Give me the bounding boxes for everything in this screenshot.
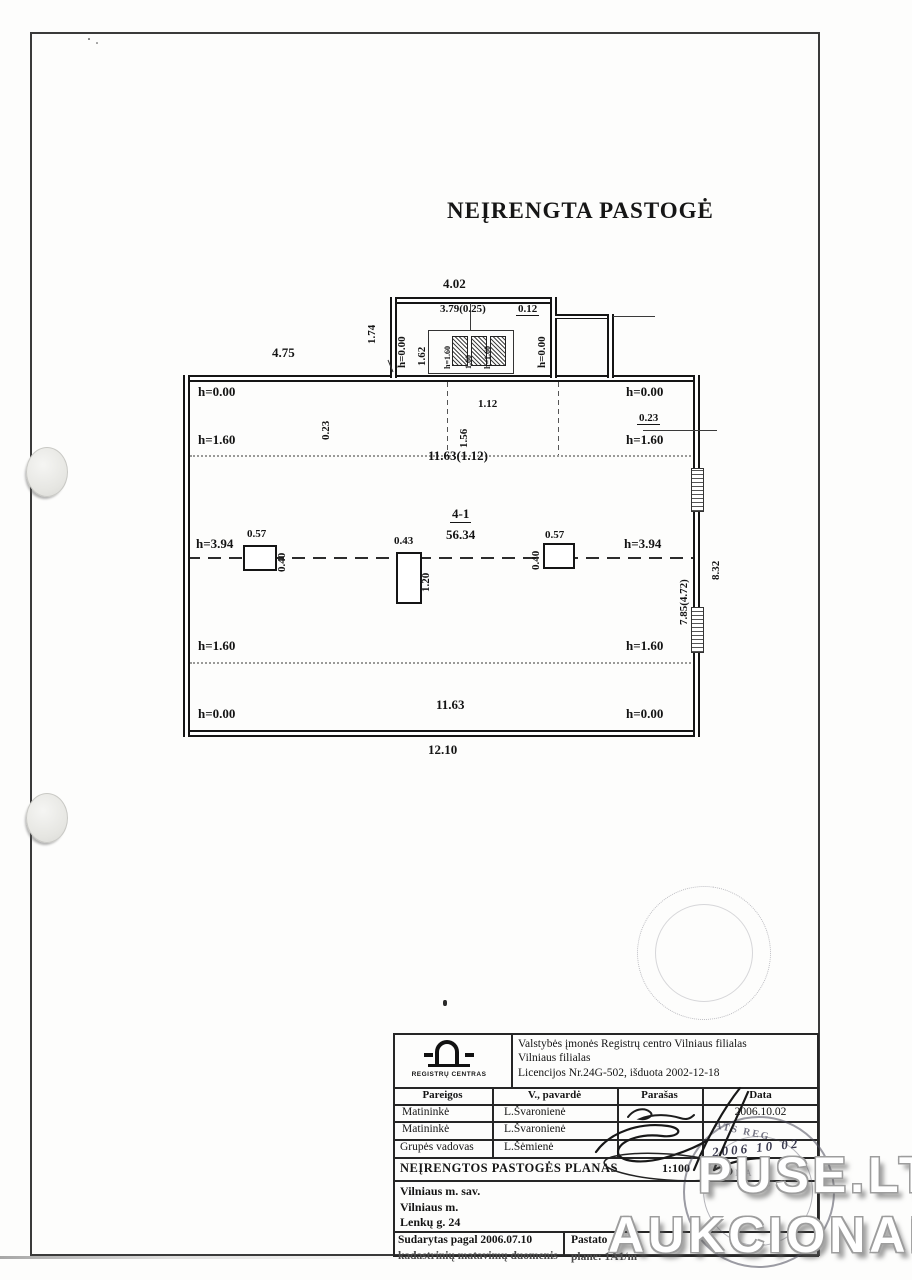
dormer-wall-right	[550, 297, 557, 378]
logo-base	[428, 1064, 470, 1067]
dashed-guide-left	[447, 382, 448, 456]
height-mid-left: h=1.60	[198, 432, 235, 448]
faint-round-stamp-inner	[655, 904, 753, 1002]
logo-bar-left	[424, 1053, 433, 1057]
tick-line-023	[643, 430, 717, 431]
height-dormer-right: h=0.00	[536, 336, 548, 368]
chimney-middle	[396, 552, 422, 604]
logo-caption: REGISTRŲ CENTRAS	[399, 1071, 499, 1078]
row1-pavarde: L.Švaronienė	[504, 1106, 566, 1118]
tblock-divider-footer	[563, 1231, 565, 1255]
row3-pareigos: Grupės vadovas	[400, 1141, 474, 1153]
roof-window-lower	[691, 607, 704, 653]
logo-arch-icon	[435, 1040, 459, 1064]
wall-left	[183, 375, 190, 737]
org-line-1: Valstybės įmonės Registrų centro Vilniau…	[518, 1038, 747, 1050]
dim-1-74: 1.74	[366, 325, 378, 344]
height-mid-right: h=1.60	[626, 432, 663, 448]
dim-1-12: 1.12	[478, 398, 497, 410]
roof-window-upper	[691, 468, 704, 512]
dim-1-62: 1.62	[416, 347, 428, 366]
watermark-line-1: PUSE.LT	[698, 1146, 912, 1204]
dim-0-23-vertical: 0.23	[320, 421, 332, 440]
dim-7-85: 7.85(4.72)	[678, 579, 690, 625]
chimney-right-width: 0.57	[545, 529, 564, 541]
row3-pavarde: L.Šėmienė	[504, 1141, 554, 1153]
height-bottom-left: h=0.00	[198, 706, 235, 722]
height-ridge-left: h=3.94	[196, 536, 233, 552]
height-ridge-right: h=3.94	[624, 536, 661, 552]
dim-12-10: 12.10	[428, 742, 457, 758]
scanned-document-page: NEĮRENGTA PASTOGĖ 4.02	[0, 0, 912, 1280]
col-header-pareigos: Pareigos	[393, 1089, 492, 1101]
tblock-divider-logo	[511, 1033, 513, 1087]
scan-smudge	[0, 1256, 420, 1259]
dim-4-02: 4.02	[443, 276, 466, 292]
hole-punch-top	[26, 447, 68, 497]
scan-speck	[96, 42, 98, 44]
height-bottom-right: h=0.00	[626, 706, 663, 722]
address-line-3: Lenkų g. 24	[400, 1215, 460, 1230]
height-dormer-left: h=0.00	[396, 336, 408, 368]
dormer-step-wall-h	[555, 314, 613, 319]
dim-8-32: 8.32	[710, 561, 722, 580]
footer-left-line-1: Sudarytas pagal 2006.07.10	[398, 1234, 532, 1246]
height-top-right: h=0.00	[626, 384, 663, 400]
row1-pareigos: Matininkė	[402, 1106, 449, 1118]
dormer-step-wall-v	[607, 314, 614, 378]
logo-bar-right	[465, 1053, 474, 1057]
height-top-left: h=0.00	[198, 384, 235, 400]
room-area: 56.34	[446, 527, 475, 543]
height-contour-160-lower	[190, 662, 695, 664]
col-header-pavarde: V., pavardė	[492, 1089, 617, 1101]
row2-pareigos: Matininkė	[402, 1123, 449, 1135]
dormer-chimney-3	[490, 336, 506, 366]
dim-1-56: 1.56	[458, 429, 470, 448]
height-low-left: h=1.60	[198, 638, 235, 654]
scan-speck	[88, 38, 90, 40]
dashed-guide-right	[558, 382, 559, 456]
footer-right-line-1: Pastato	[571, 1234, 607, 1246]
hole-punch-bottom	[26, 793, 68, 843]
page-title: NEĮRENGTA PASTOGĖ	[447, 198, 714, 224]
dim-0-12: 0.12	[516, 303, 539, 316]
registru-centras-logo	[424, 1040, 474, 1068]
chimney-right	[543, 543, 575, 569]
chimney-left-depth: 0.40	[276, 553, 288, 572]
dormer-stack-label-3: h=1.60	[483, 346, 492, 369]
extension-line	[613, 316, 655, 317]
org-line-3: Licencijos Nr.24G-502, išduota 2002-12-1…	[518, 1067, 720, 1079]
col-header-data: Data	[702, 1089, 819, 1101]
address-line-2: Vilniaus m.	[400, 1200, 458, 1215]
dormer-stack-label-1: h=1.60	[443, 346, 452, 369]
wall-top	[183, 375, 700, 382]
address-line-1: Vilniaus m. sav.	[400, 1184, 480, 1199]
chimney-left	[243, 545, 277, 571]
dim-0-23-right: 0.23	[637, 412, 660, 425]
footer-left-line-2: kadastrinių matavimų duomenis	[398, 1250, 558, 1262]
chimney-left-width: 0.57	[247, 528, 266, 540]
dim-11-63-112: 11.63(1.12)	[428, 448, 488, 464]
room-code: 4-1	[450, 506, 471, 523]
dim-11-63: 11.63	[436, 697, 465, 713]
dim-3-79: 3.79(0.25)	[440, 303, 486, 315]
chimney-mid-depth: 1.20	[420, 573, 432, 592]
dormer-stack-label-2: 1.60	[464, 355, 473, 369]
scan-speck	[443, 1000, 447, 1006]
row2-pavarde: L.Švaronienė	[504, 1123, 566, 1135]
chimney-mid-width: 0.43	[394, 535, 413, 547]
dim-4-75: 4.75	[272, 345, 295, 361]
chimney-right-depth: 0.40	[530, 551, 542, 570]
watermark-line-2: AUKCIONAI	[608, 1206, 912, 1264]
wall-bottom	[183, 730, 700, 737]
plan-title: NEĮRENGTOS PASTOGĖS PLANAS	[400, 1161, 618, 1176]
height-low-right: h=1.60	[626, 638, 663, 654]
org-line-2: Vilniaus filialas	[518, 1052, 590, 1064]
col-header-parasas: Parašas	[617, 1089, 702, 1101]
